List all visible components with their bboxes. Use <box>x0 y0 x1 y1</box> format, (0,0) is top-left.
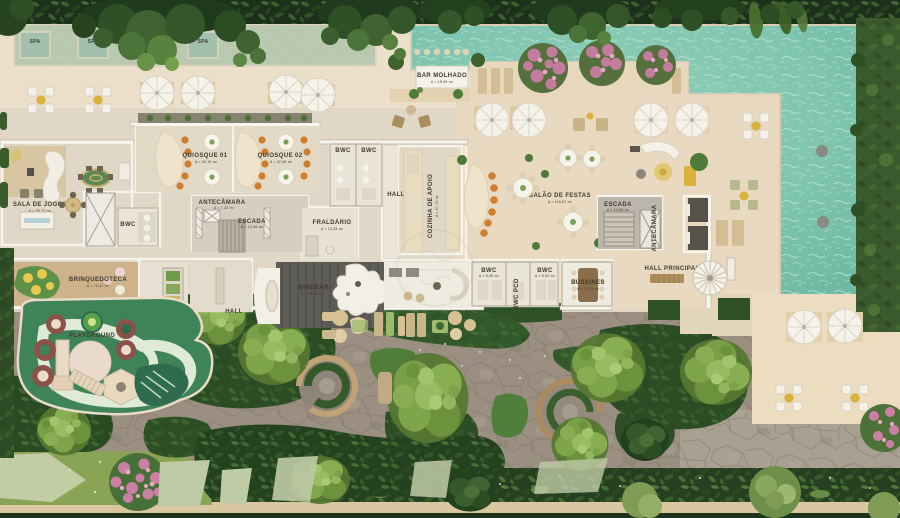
svg-text:QUIOSQUE 02: QUIOSQUE 02 <box>257 153 302 159</box>
svg-text:BAR MOLHADO: BAR MOLHADO <box>417 73 467 79</box>
svg-text:A = 75,12 m²: A = 75,12 m² <box>301 292 324 296</box>
svg-text:A = 5,02 m²: A = 5,02 m² <box>535 274 556 278</box>
svg-text:A = 7,32 m²: A = 7,32 m² <box>214 206 235 210</box>
svg-text:A = 71,47 m²: A = 71,47 m² <box>87 284 110 288</box>
svg-text:BWC: BWC <box>120 222 136 228</box>
svg-text:A = 27,13 m²: A = 27,13 m² <box>435 194 439 217</box>
svg-text:BWC: BWC <box>361 148 377 154</box>
svg-text:HALL: HALL <box>387 192 405 198</box>
svg-text:ANTECÂMARA: ANTECÂMARA <box>651 204 658 251</box>
svg-text:BWC PCD: BWC PCD <box>514 278 520 310</box>
svg-text:BRINQUEDOTECA: BRINQUEDOTECA <box>69 277 127 283</box>
svg-text:A = 12,66 m²: A = 12,66 m² <box>241 225 264 229</box>
svg-text:A = 12,33 m²: A = 12,33 m² <box>321 227 344 231</box>
svg-text:A = 10,12 m²: A = 10,12 m² <box>577 287 600 291</box>
svg-text:BWC: BWC <box>335 148 351 154</box>
svg-text:A = 14,86 m²: A = 14,86 m² <box>607 208 630 212</box>
svg-text:BUSSINES: BUSSINES <box>571 280 605 286</box>
svg-text:ANTECÂMARA: ANTECÂMARA <box>199 199 246 206</box>
svg-text:A = 5,26 m²: A = 5,26 m² <box>479 274 500 278</box>
svg-text:FRALDÁRIO: FRALDÁRIO <box>313 219 352 226</box>
svg-text:A = 42,48 m²: A = 42,48 m² <box>270 160 293 164</box>
svg-text:A = 116,67 m²: A = 116,67 m² <box>548 200 573 204</box>
svg-text:SPA: SPA <box>198 39 209 45</box>
svg-text:PLAYGROUND: PLAYGROUND <box>69 333 115 339</box>
svg-text:QUIOSQUE 01: QUIOSQUE 01 <box>182 153 227 159</box>
svg-text:HALL PRINCIPAL: HALL PRINCIPAL <box>644 266 699 272</box>
svg-text:A = 15,49 m²: A = 15,49 m² <box>431 80 454 84</box>
svg-text:SPA: SPA <box>30 39 41 45</box>
svg-text:WINEBAR: WINEBAR <box>297 285 329 291</box>
svg-text:A = 42,15 m²: A = 42,15 m² <box>195 160 218 164</box>
svg-text:COZINHA DE APOIO: COZINHA DE APOIO <box>428 174 434 238</box>
svg-text:HALL: HALL <box>225 309 243 315</box>
svg-text:SALÃO DE FESTAS: SALÃO DE FESTAS <box>529 192 591 199</box>
